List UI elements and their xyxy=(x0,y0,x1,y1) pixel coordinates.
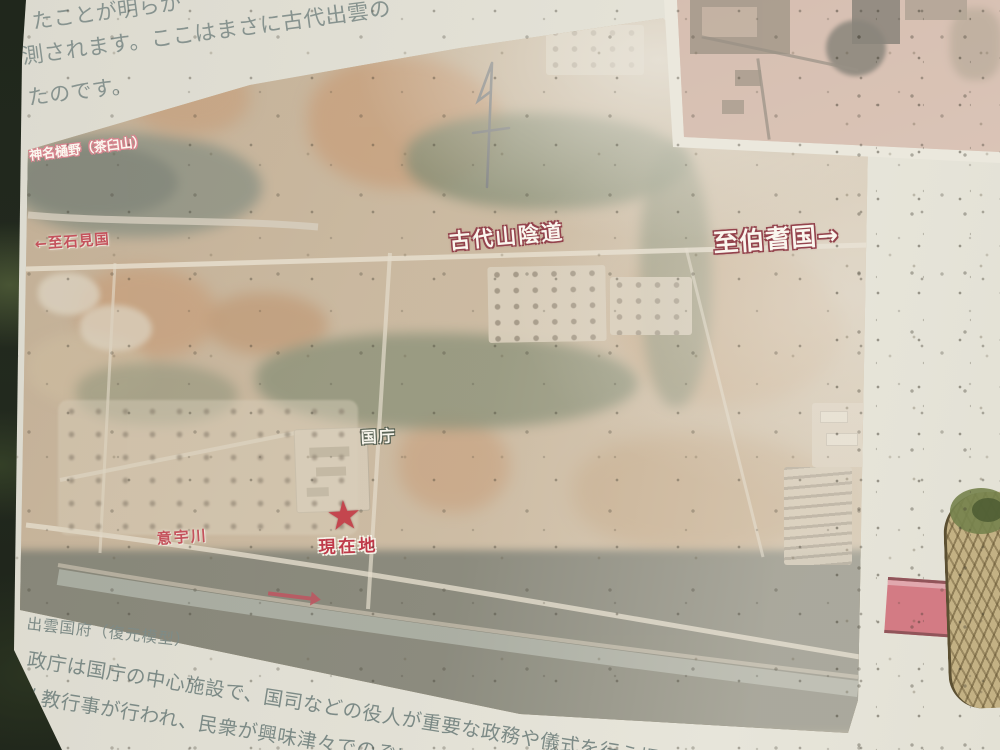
map-village-cluster xyxy=(58,400,358,535)
map-right-compound xyxy=(812,403,866,467)
intro-text-line3: たのです。 xyxy=(26,69,134,112)
map-ruins-compound xyxy=(546,25,644,75)
map-storehouse-compound xyxy=(610,277,692,335)
map-storehouse-rows xyxy=(784,467,852,565)
north-arrow-icon xyxy=(470,55,514,195)
map-village-patch xyxy=(80,305,152,351)
illustration-leaves-dark xyxy=(972,498,1000,522)
photo-of-sign: たことが明らか 測されます。ここはまさに古代出雲の たのです。 xyxy=(0,0,1000,750)
map-label-genzaichi: 現在地 xyxy=(318,531,379,558)
map-label-kokucho: 国庁 xyxy=(360,422,397,448)
map-storehouse-compound xyxy=(487,265,606,343)
map-building xyxy=(826,433,858,446)
sign-board: たことが明らか 測されます。ここはまさに古代出雲の たのです。 xyxy=(0,0,1000,750)
map-building xyxy=(820,411,848,423)
map-label-river: 意宇川 xyxy=(156,524,208,549)
